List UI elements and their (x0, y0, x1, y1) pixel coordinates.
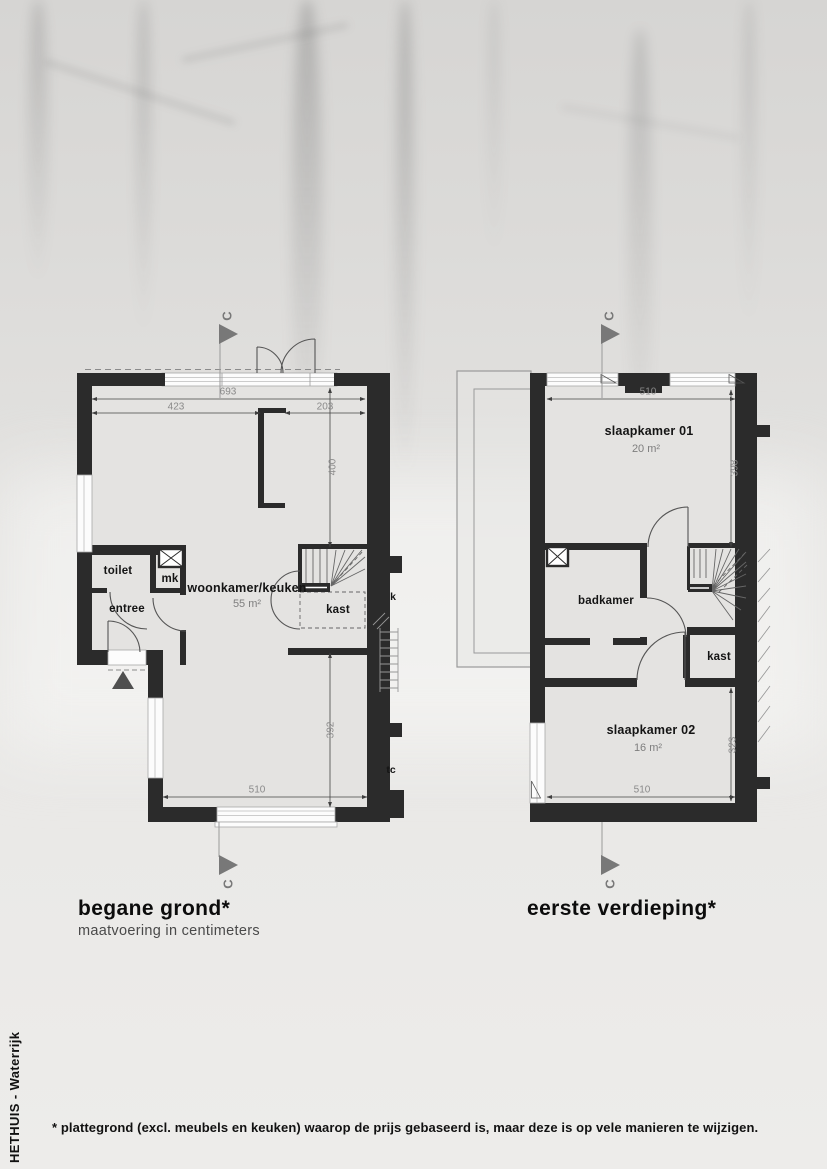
dim-front-width-left: 423 (168, 402, 185, 413)
dim-rear-depth: 392 (326, 722, 337, 739)
area-label-bedroom-01: 20 m² (632, 443, 660, 455)
ground-floor-subtitle: maatvoering in centimeters (78, 923, 260, 939)
label-layer: toilet mk entree woonkamer/keuken 55 m² … (0, 0, 827, 1169)
room-label-mk: mk (161, 573, 178, 585)
room-label-kast-ground: kast (326, 604, 350, 616)
dim-rear-depth-first: 323 (728, 737, 739, 754)
section-letter-ground-top: C (220, 311, 235, 320)
dim-front-width-right: 203 (317, 402, 334, 413)
room-label-bedroom-02: slaapkamer 02 (607, 723, 696, 737)
dim-front-depth-first: 398 (730, 460, 741, 477)
section-letter-first-bottom: C (603, 879, 618, 888)
area-label-living-kitchen: 55 m² (233, 598, 261, 610)
section-letter-ground-bottom: C (221, 879, 236, 888)
ground-floor-title: begane grond* (78, 897, 230, 921)
room-label-kast-first: kast (707, 651, 731, 663)
dim-front-width-first: 510 (640, 387, 657, 398)
room-label-badkamer: badkamer (578, 595, 634, 607)
dim-total-width: 693 (220, 387, 237, 398)
section-letter-first-top: C (602, 311, 617, 320)
room-label-living-kitchen: woonkamer/keuken (187, 581, 306, 595)
neighbor-label-kast: k (390, 591, 396, 603)
brand-vertical-label: HETHUIS - Waterrijk (7, 1032, 22, 1163)
dim-living-depth: 400 (328, 459, 339, 476)
room-label-bedroom-01: slaapkamer 01 (605, 424, 694, 438)
area-label-bedroom-02: 16 m² (634, 742, 662, 754)
room-label-entree: entree (109, 603, 145, 615)
first-floor-title: eerste verdieping* (527, 897, 716, 921)
dim-rear-width-first: 510 (634, 785, 651, 796)
floor-plan-page: toilet mk entree woonkamer/keuken 55 m² … (0, 0, 827, 1169)
room-label-toilet: toilet (104, 565, 133, 577)
neighbor-label-toilet: tc (386, 764, 395, 776)
price-footnote: * plattegrond (excl. meubels en keuken) … (52, 1120, 758, 1135)
dim-rear-width: 510 (249, 785, 266, 796)
